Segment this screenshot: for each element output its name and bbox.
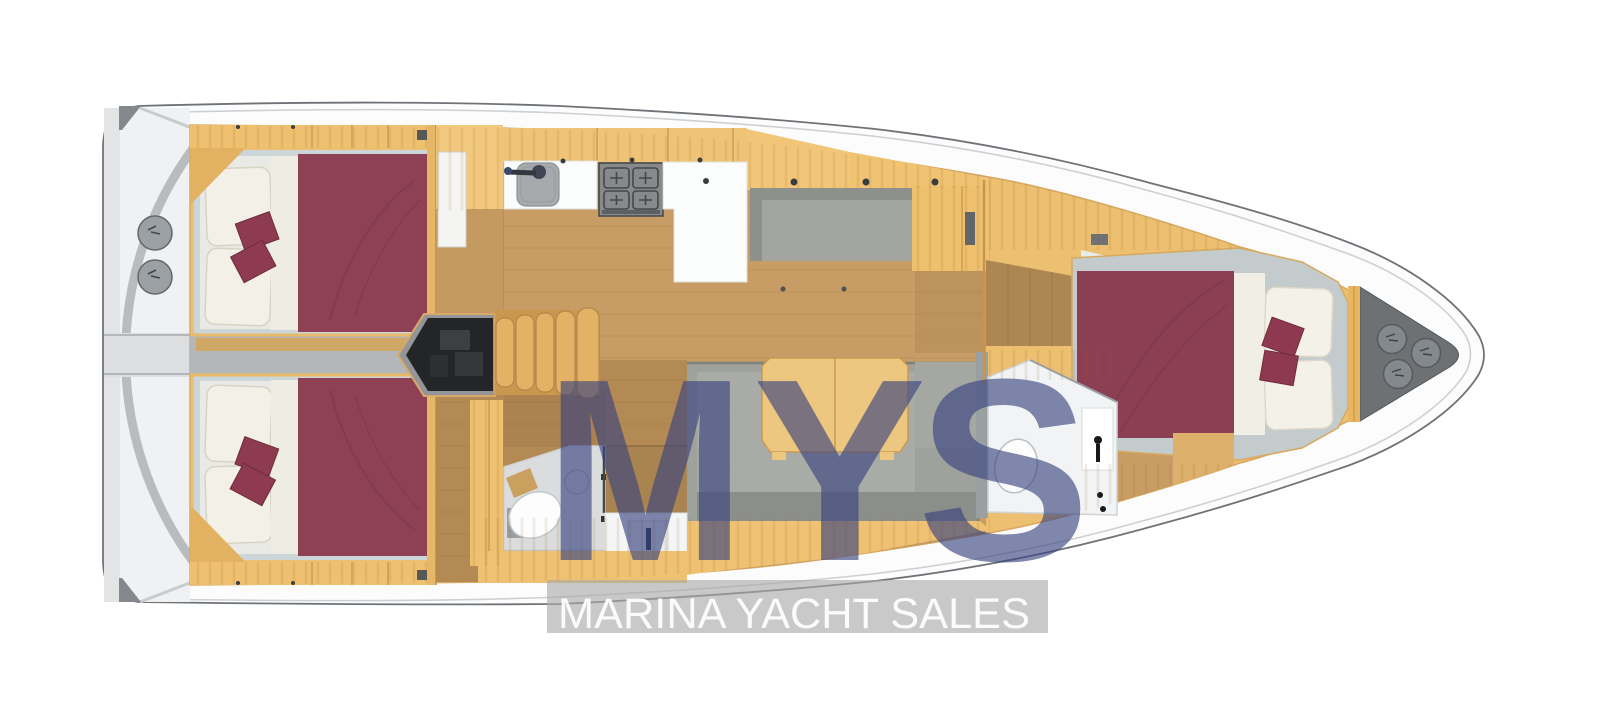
svg-text:S: S [917,326,1090,616]
svg-text:Y: Y [753,326,926,616]
svg-text:MARINA YACHT SALES: MARINA YACHT SALES [558,590,1030,638]
svg-text:M: M [545,326,747,616]
